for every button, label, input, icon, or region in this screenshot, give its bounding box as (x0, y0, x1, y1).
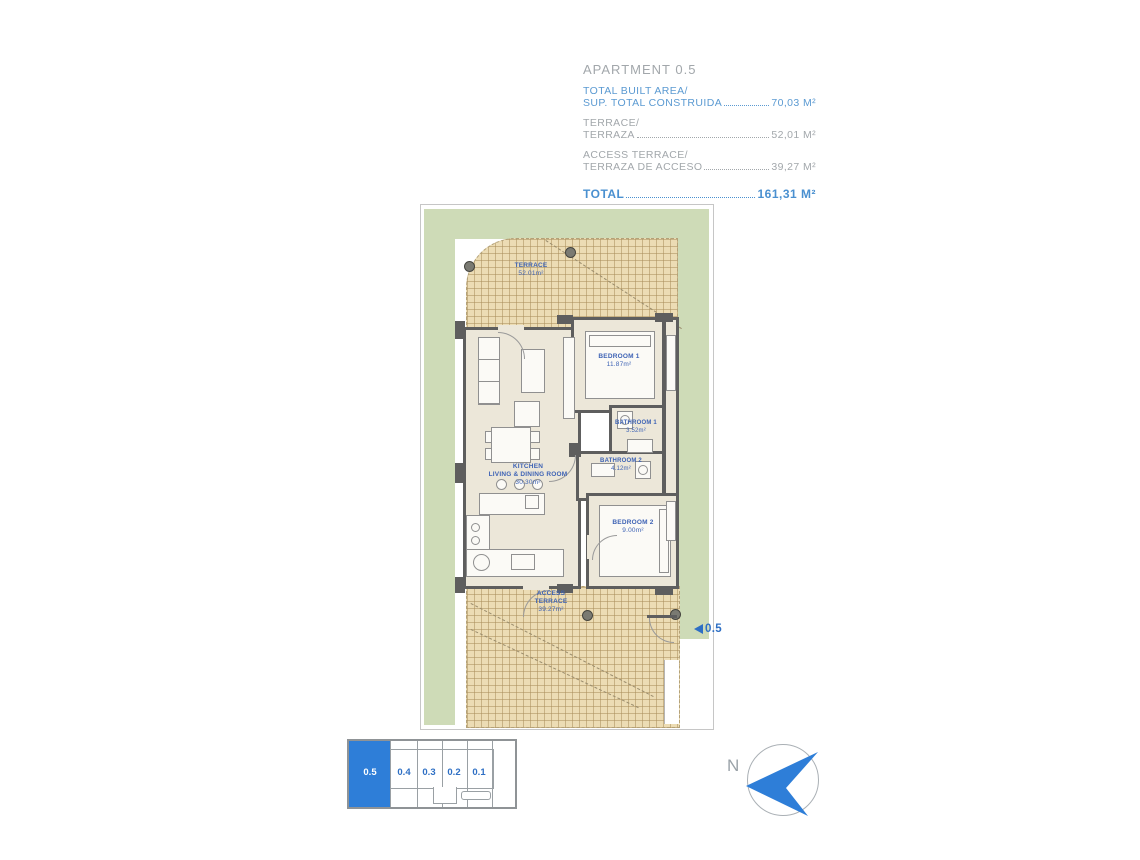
sofa (478, 337, 500, 405)
room-name: BATHROOM 2 (579, 457, 663, 465)
wall-pier (557, 315, 573, 324)
wardrobe (666, 335, 676, 391)
header: APARTMENT 0.5 TOTAL BUILT AREA/ SUP. TOT… (583, 62, 816, 201)
room-area: 3.52m² (605, 427, 667, 435)
unit-label-01[interactable]: 0.1 (472, 767, 485, 778)
entrance-arrow-icon (694, 624, 703, 634)
area-label-line2: TERRAZA (583, 129, 635, 141)
door-gap (498, 325, 524, 332)
total-row: TOTAL 161,31 M² (583, 187, 816, 201)
floor-plan: TERRACE 52.01m² BEDROOM 1 11.87m² BATHRO… (420, 204, 714, 730)
compass-north-label: N (727, 756, 739, 776)
terrace-label: TERRACE 52.01m² (481, 262, 581, 278)
room-area: 4.12m² (579, 465, 663, 473)
entrance-marker: 0.5 (694, 623, 722, 635)
area-value: 39,27 M² (771, 161, 816, 173)
drain-icon (464, 261, 475, 272)
key-plan: 0.5 0.4 0.3 0.2 0.1 (347, 739, 517, 809)
area-value: 70,03 M² (771, 97, 816, 109)
room-name: BEDROOM 2 (593, 519, 673, 527)
garden-band-right (676, 209, 709, 639)
burner-icon (471, 536, 480, 545)
unit-label-03[interactable]: 0.3 (422, 767, 435, 778)
area-value: 52,01 M² (771, 129, 816, 141)
wall-pier (455, 321, 465, 339)
wall-pier (455, 463, 465, 483)
garden-band-top (424, 209, 709, 239)
wall-pier (655, 313, 673, 322)
room-area: 9.00m² (593, 527, 673, 535)
garden-band-left (424, 209, 455, 725)
room-area: 39.27m² (516, 606, 586, 614)
total-value: 161,31 M² (757, 187, 816, 201)
wall-pier (455, 577, 465, 593)
area-label-line2: SUP. TOTAL CONSTRUIDA (583, 97, 722, 109)
room-name: ACCESS (516, 590, 586, 598)
key-plan-divider (492, 741, 493, 807)
north-arrow-icon (740, 742, 824, 820)
area-label-line1: TERRACE/ (583, 117, 816, 129)
bedroom2-label: BEDROOM 2 9.00m² (593, 519, 673, 535)
area-row-built: TOTAL BUILT AREA/ SUP. TOTAL CONSTRUIDA … (583, 85, 816, 109)
dot-leader (637, 137, 770, 138)
door-gap (523, 582, 549, 590)
total-label: TOTAL (583, 187, 624, 201)
room-name: BEDROOM 1 (573, 353, 665, 361)
sideboard (563, 337, 575, 419)
bedroom1-label: BEDROOM 1 11.87m² (573, 353, 665, 369)
unit-label-05[interactable]: 0.5 (363, 767, 376, 778)
entrance-notch (664, 660, 679, 724)
wall-pier (655, 586, 673, 595)
drain-icon (565, 247, 576, 258)
kitchen-label: KITCHEN LIVING & DINING ROOM 30.30m² (473, 463, 583, 487)
area-label-line1: TOTAL BUILT AREA/ (583, 85, 816, 97)
kitchen-sink (511, 554, 535, 570)
room-area: 30.30m² (473, 479, 583, 487)
dot-leader (626, 197, 755, 198)
key-plan-slot (461, 791, 491, 800)
dot-leader (704, 169, 769, 170)
access-terrace-label: ACCESS TERRACE 39.27m² (516, 590, 586, 614)
key-plan-divider (390, 741, 391, 807)
bathroom2-label: BATHROOM 2 4.12m² (579, 457, 663, 473)
unit-label-04[interactable]: 0.4 (397, 767, 410, 778)
room-name: TERRACE (516, 598, 586, 606)
room-name: KITCHEN (473, 463, 583, 471)
room-name: BATHROOM 1 (605, 419, 667, 427)
key-plan-divider (417, 741, 418, 807)
area-row-access-terrace: ACCESS TERRACE/ TERRAZA DE ACCESO 39,27 … (583, 149, 816, 173)
coffee-table (514, 401, 540, 427)
room-area: 11.87m² (573, 361, 665, 369)
entrance-unit-label: 0.5 (705, 623, 722, 635)
room-name: LIVING & DINING ROOM (473, 471, 583, 479)
area-label-line2: TERRAZA DE ACCESO (583, 161, 702, 173)
dining-table (491, 427, 531, 463)
cooktop (525, 495, 539, 509)
area-row-terrace: TERRACE/ TERRAZA 52,01 M² (583, 117, 816, 141)
room-name: TERRACE (481, 262, 581, 270)
sink-icon (627, 439, 653, 453)
bed-pillows (589, 335, 651, 347)
area-label-line1: ACCESS TERRACE/ (583, 149, 816, 161)
floorplan-sheet: APARTMENT 0.5 TOTAL BUILT AREA/ SUP. TOT… (0, 0, 1140, 860)
dot-leader (724, 105, 769, 106)
burner-icon (471, 523, 480, 532)
key-plan-entry-tab (433, 787, 457, 804)
room-area: 52.01m² (481, 270, 581, 278)
page-title: APARTMENT 0.5 (583, 62, 816, 77)
washer-icon (473, 554, 490, 571)
unit-label-02[interactable]: 0.2 (447, 767, 460, 778)
bathroom1-label: BATHROOM 1 3.52m² (605, 419, 667, 435)
